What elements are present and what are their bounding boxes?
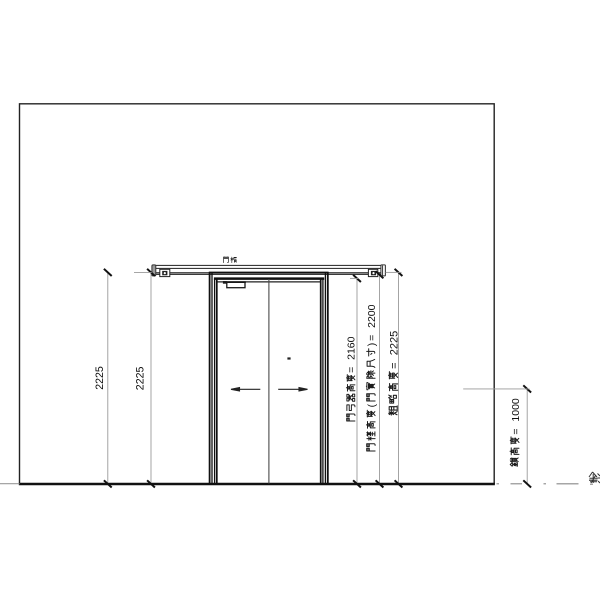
- svg-text:=: =: [366, 335, 378, 341]
- svg-text:2160: 2160: [346, 336, 358, 360]
- svg-text:1000: 1000: [510, 398, 522, 422]
- svg-text:): ): [366, 343, 378, 347]
- svg-text:2225: 2225: [389, 331, 401, 355]
- svg-text:=: =: [389, 362, 401, 368]
- svg-text:=: =: [346, 367, 358, 373]
- svg-text:2225: 2225: [94, 366, 106, 390]
- svg-text:2225: 2225: [134, 367, 146, 391]
- svg-text:(: (: [366, 403, 378, 407]
- svg-text:=: =: [510, 428, 522, 434]
- svg-text:2200: 2200: [366, 304, 378, 328]
